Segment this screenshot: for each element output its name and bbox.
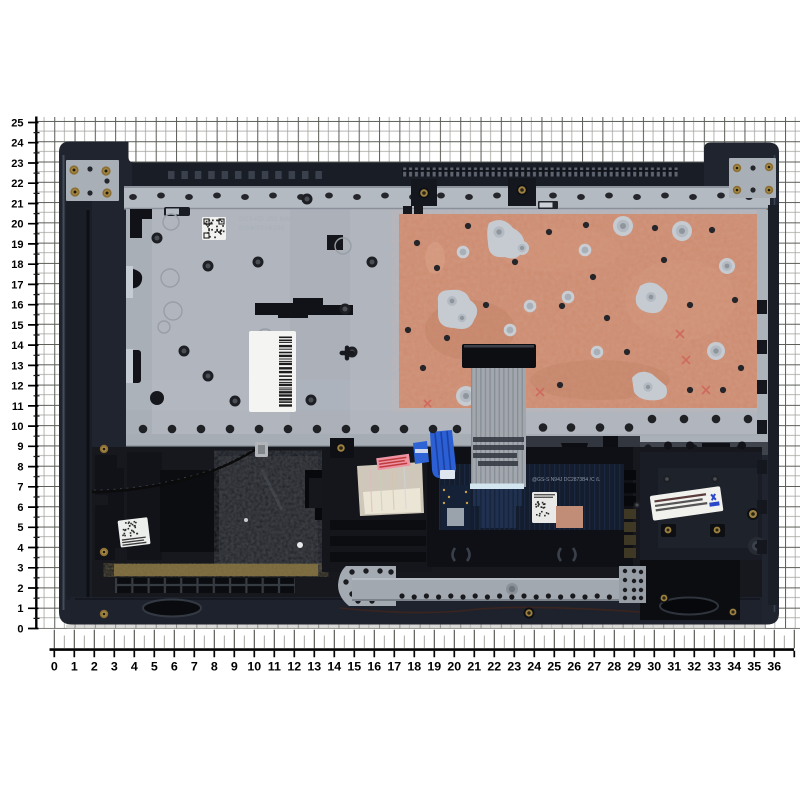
svg-text:14: 14 <box>11 340 24 352</box>
svg-text:6: 6 <box>17 502 23 514</box>
svg-text:34: 34 <box>727 660 741 674</box>
svg-text:31: 31 <box>667 660 681 674</box>
svg-text:DS3-KD JS1 BW: DS3-KD JS1 BW <box>239 216 291 223</box>
svg-text:@GS-S N94J DC2873B4 /C /L: @GS-S N94J DC2873B4 /C /L <box>532 477 600 483</box>
svg-text:27: 27 <box>587 660 601 674</box>
svg-text:15: 15 <box>11 320 23 332</box>
svg-text:28: 28 <box>607 660 621 674</box>
svg-text:24: 24 <box>11 138 24 150</box>
svg-text:22: 22 <box>487 660 501 674</box>
svg-text:17: 17 <box>11 279 23 291</box>
svg-text:36: 36 <box>767 660 781 674</box>
svg-text:21: 21 <box>11 198 23 210</box>
svg-text:19: 19 <box>11 239 23 251</box>
svg-text:4: 4 <box>131 660 138 674</box>
svg-text:29: 29 <box>627 660 641 674</box>
svg-text:18: 18 <box>407 660 421 674</box>
svg-text:11: 11 <box>268 660 281 674</box>
svg-text:16: 16 <box>367 660 381 674</box>
svg-text:17: 17 <box>387 660 401 674</box>
svg-text:15: 15 <box>347 660 361 674</box>
svg-text:4: 4 <box>17 542 24 554</box>
svg-text:8: 8 <box>211 660 218 674</box>
svg-text:12: 12 <box>287 660 301 674</box>
svg-text:5: 5 <box>17 522 23 534</box>
svg-text:10: 10 <box>247 660 261 674</box>
svg-text:11: 11 <box>12 401 24 413</box>
svg-text:13: 13 <box>11 360 23 372</box>
svg-text:30: 30 <box>647 660 661 674</box>
svg-text:20: 20 <box>447 660 461 674</box>
svg-text:12: 12 <box>11 381 23 393</box>
svg-text:25: 25 <box>547 660 561 674</box>
svg-text:22: 22 <box>11 178 23 190</box>
svg-text:5: 5 <box>151 660 158 674</box>
svg-text:1: 1 <box>17 603 23 615</box>
svg-text:2: 2 <box>17 583 23 595</box>
svg-text:7: 7 <box>191 660 198 674</box>
svg-text:8: 8 <box>17 462 23 474</box>
svg-text:1: 1 <box>71 660 78 674</box>
svg-text:7: 7 <box>17 482 23 494</box>
svg-text:33: 33 <box>707 660 721 674</box>
svg-text:18: 18 <box>11 259 23 271</box>
svg-text:24: 24 <box>527 660 541 674</box>
svg-text:14: 14 <box>327 660 341 674</box>
svg-text:25: 25 <box>11 117 23 129</box>
svg-text:23: 23 <box>507 660 521 674</box>
svg-text:23: 23 <box>11 158 23 170</box>
svg-text:9: 9 <box>17 441 23 453</box>
svg-text:13: 13 <box>307 660 321 674</box>
svg-text:2: 2 <box>91 660 98 674</box>
svg-text:BS0KE00K100: BS0KE00K100 <box>239 225 285 232</box>
svg-text:3: 3 <box>17 563 23 575</box>
svg-text:35: 35 <box>747 660 761 674</box>
svg-text:26: 26 <box>567 660 581 674</box>
svg-text:10: 10 <box>11 421 23 433</box>
svg-text:16: 16 <box>11 300 23 312</box>
svg-text:0: 0 <box>17 623 23 635</box>
svg-text:19: 19 <box>427 660 441 674</box>
svg-text:32: 32 <box>687 660 701 674</box>
svg-text:21: 21 <box>467 660 481 674</box>
svg-text:3: 3 <box>111 660 118 674</box>
svg-text:9: 9 <box>231 660 238 674</box>
svg-text:0: 0 <box>51 660 58 674</box>
svg-text:6: 6 <box>171 660 178 674</box>
svg-text:20: 20 <box>11 219 23 231</box>
